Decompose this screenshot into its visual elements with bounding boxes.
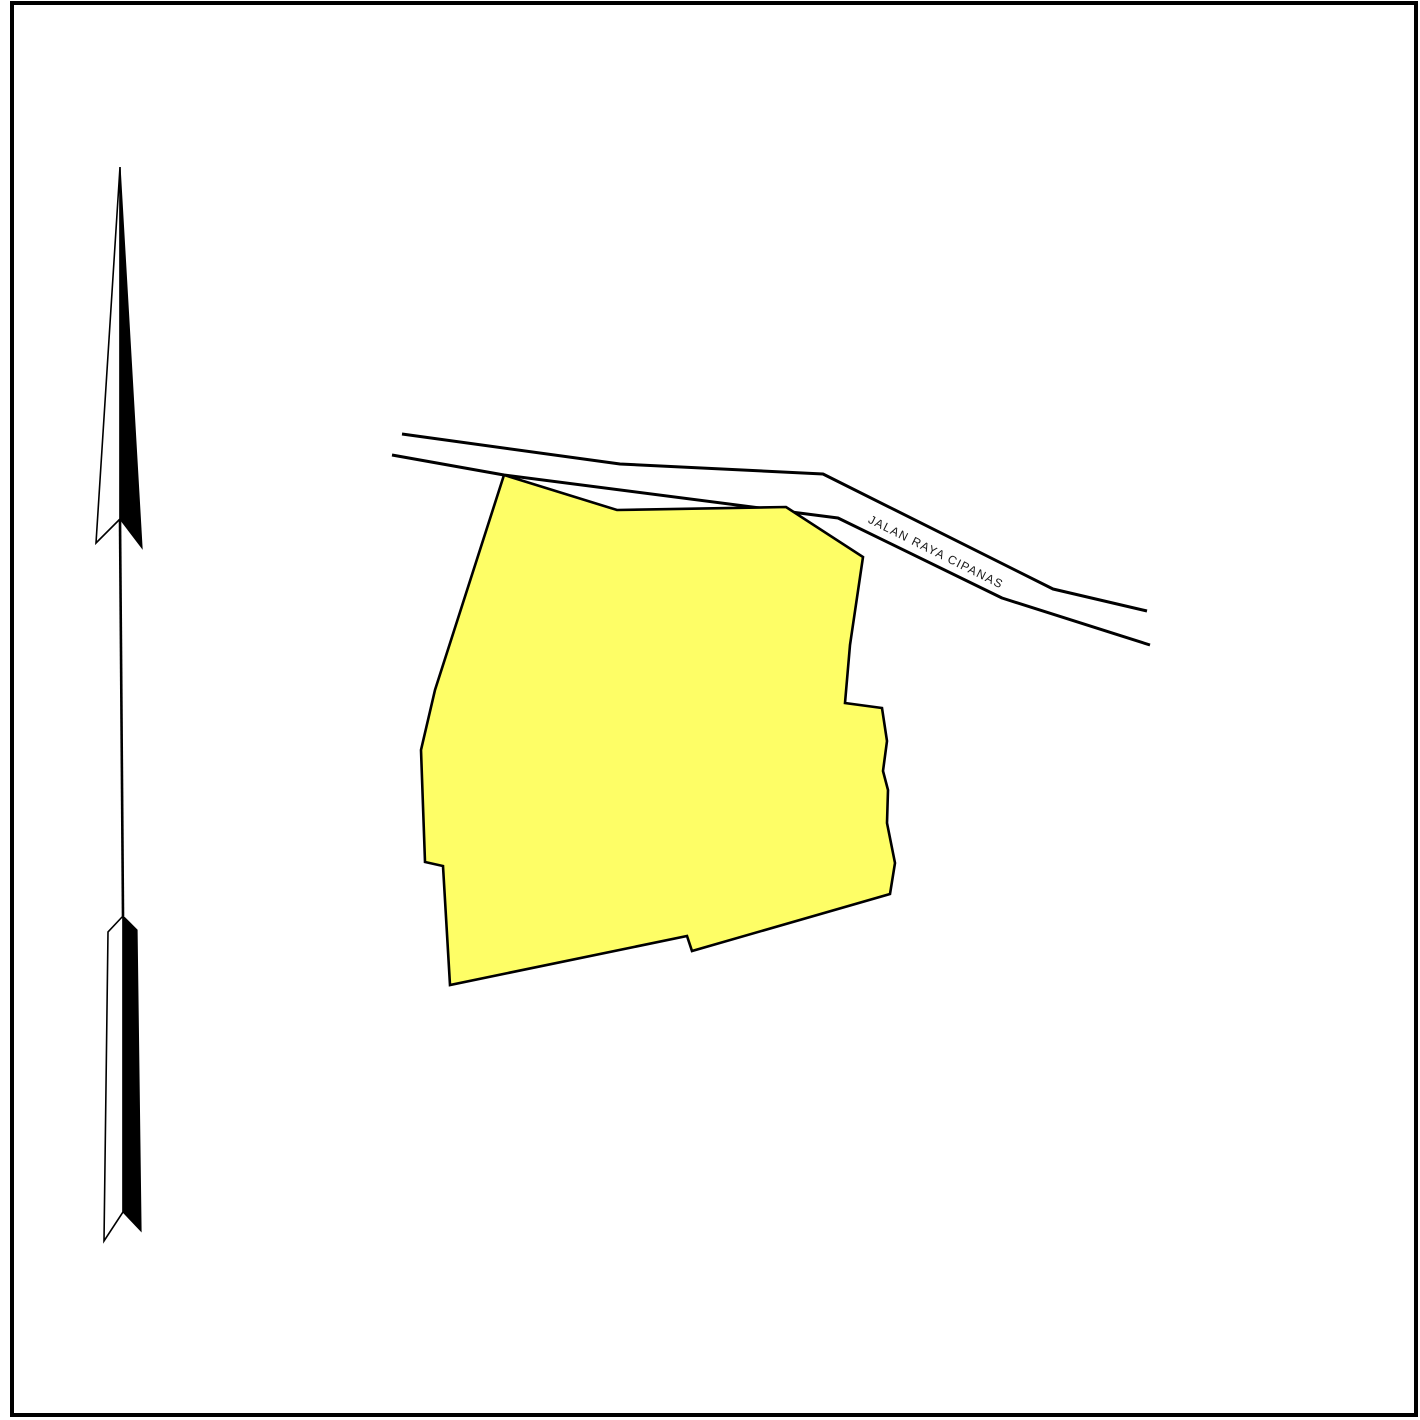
- north-arrow-head-white-half: [96, 167, 120, 543]
- north-arrow-head-black-half: [120, 167, 142, 548]
- north-arrow-tail-white-half: [104, 916, 123, 1241]
- north-arrow-shaft: [120, 519, 123, 916]
- north-arrow-icon: [96, 167, 142, 1241]
- drawing-page: JALAN RAYA CIPANAS: [0, 0, 1420, 1420]
- road-name-label: JALAN RAYA CIPANAS: [866, 512, 1006, 591]
- north-arrow-tail-black-half: [123, 916, 141, 1231]
- land-parcel: [421, 475, 895, 985]
- map-canvas: JALAN RAYA CIPANAS: [0, 0, 1420, 1420]
